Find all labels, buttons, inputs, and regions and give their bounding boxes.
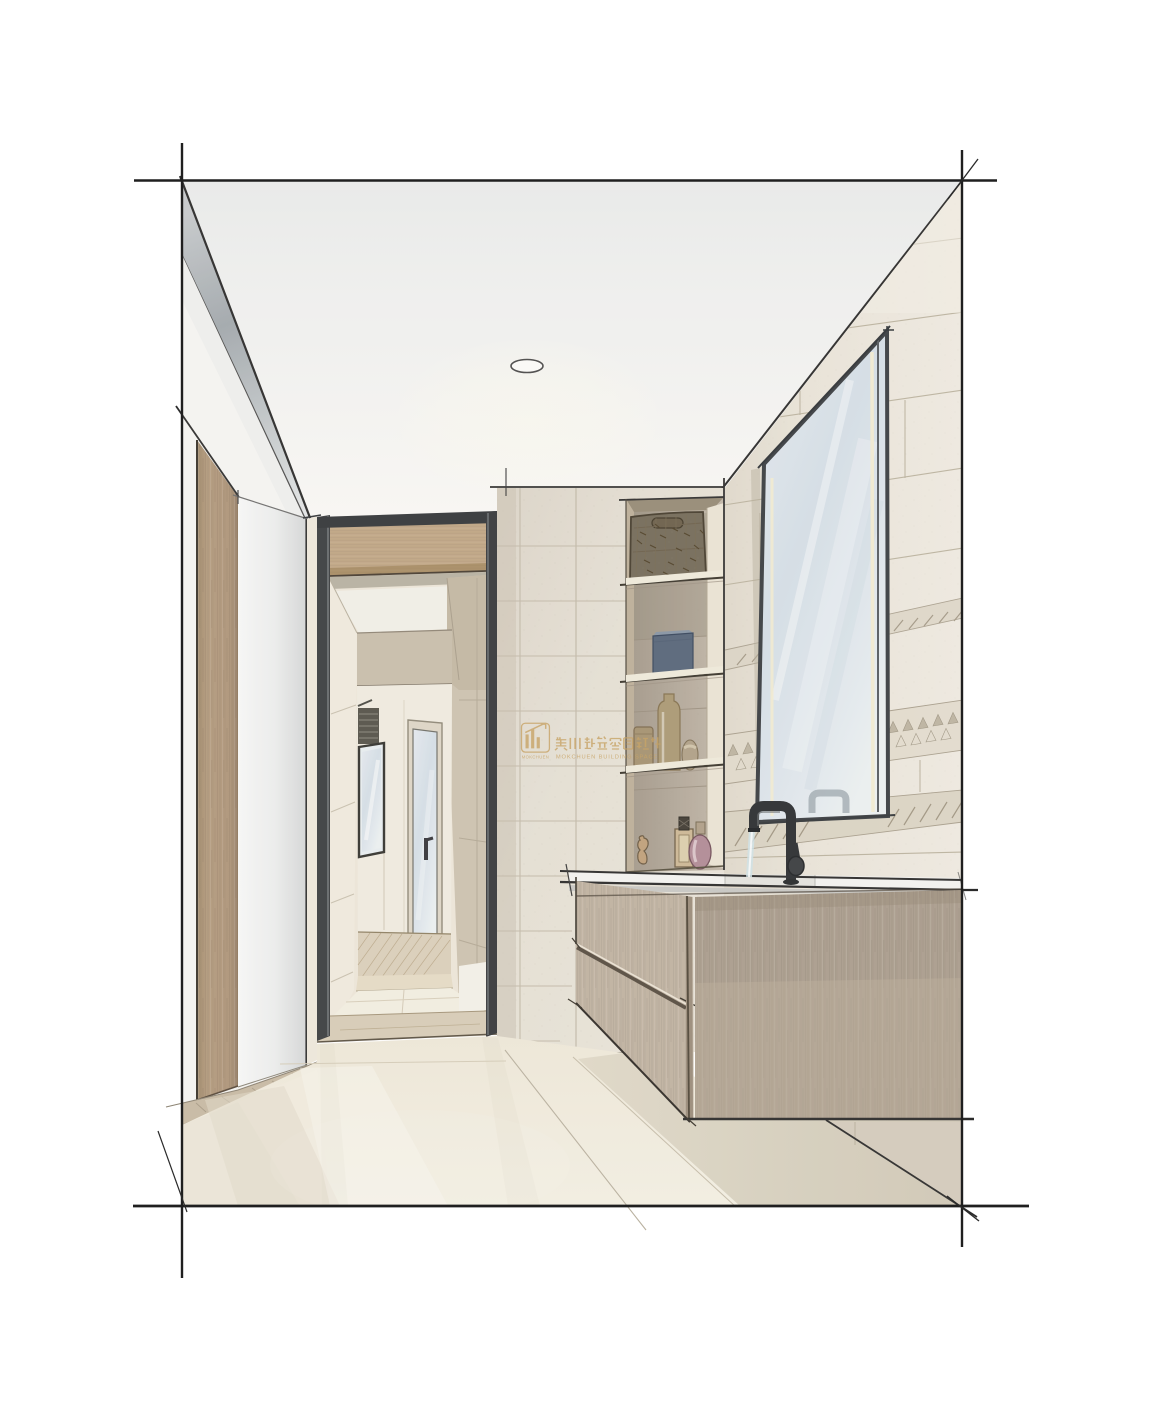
svg-text:MOKCHUEN BUILDING SPACE: MOKCHUEN BUILDING SPACE bbox=[556, 755, 658, 761]
svg-text:MOKCHUEN: MOKCHUEN bbox=[522, 755, 549, 760]
